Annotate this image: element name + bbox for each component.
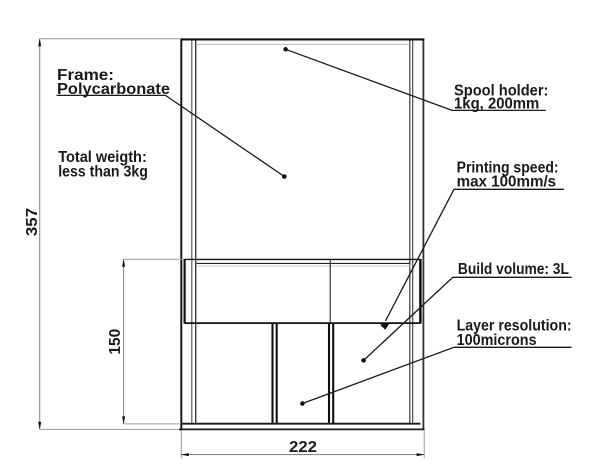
svg-text:357: 357 bbox=[24, 208, 41, 236]
svg-text:222: 222 bbox=[289, 439, 317, 456]
svg-text:max 100mm/s: max 100mm/s bbox=[457, 174, 557, 191]
svg-text:Build volume: 3L: Build volume: 3L bbox=[458, 261, 569, 278]
svg-text:less than 3kg: less than 3kg bbox=[58, 164, 148, 181]
svg-text:150: 150 bbox=[107, 329, 124, 355]
svg-text:100microns: 100microns bbox=[457, 332, 537, 349]
